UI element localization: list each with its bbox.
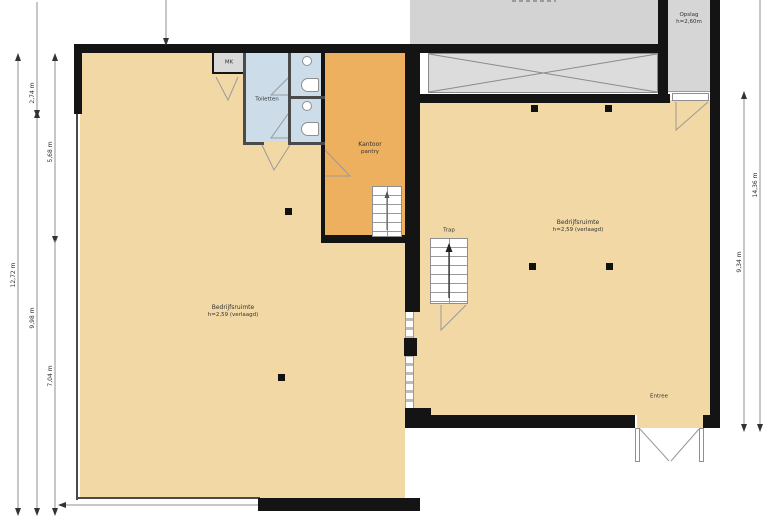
wall-right-room-bottom-left: [418, 415, 635, 428]
dim-right-inner: 9,34 m: [736, 251, 743, 272]
wall-right-room-top: [418, 94, 670, 103]
upper-area-cutoff: [410, 0, 658, 44]
label-right-hall: Bedrijfsruimte h=2,59 (verlaagd): [553, 219, 604, 233]
door-swing-entree-left: [640, 429, 669, 461]
column: [278, 374, 285, 381]
dimension-lines-right: [744, 0, 760, 428]
wall-right-room-bottom-right: [703, 415, 720, 428]
room-name: Bedrijfsruimte: [208, 304, 259, 312]
room-height-note: h=2,59 (verlaagd): [208, 311, 259, 318]
dim-left-inner-bottom: 7,04 m: [47, 365, 54, 386]
sink-icon: [302, 101, 312, 111]
stair-trap: [430, 238, 468, 304]
wall-kantoor-bottom: [321, 235, 420, 243]
column: [605, 105, 612, 112]
stair-pantry: [372, 186, 402, 237]
wall-toiletten-left: [243, 53, 246, 145]
column: [529, 263, 536, 270]
wall-center-vertical: [405, 44, 420, 312]
wall-left-thick: [74, 44, 82, 114]
dim-left-mid-top: 2,74 m: [29, 82, 36, 103]
room-sub-note: pantry: [358, 148, 381, 155]
label-opslag: Opslag h=2,60m: [676, 12, 702, 26]
floor-plan: Bedrijfsruimte h=2,59 (verlaagd) Bedrijf…: [0, 0, 780, 520]
room-height-note: h=2,59 (verlaagd): [553, 226, 604, 233]
label-entree: Entree: [650, 394, 668, 401]
wall-stall-divider-h: [288, 96, 325, 99]
room-name: Kantoor: [358, 141, 381, 149]
stair-centerline: [449, 239, 450, 303]
wall-top: [74, 44, 668, 53]
wall-toiletten-bottom-b: [288, 142, 325, 145]
column: [531, 105, 538, 112]
stair-centerline: [387, 187, 388, 236]
door-leaf-entree-left: [635, 428, 640, 462]
crossed-void-box: [428, 53, 658, 93]
column: [606, 263, 613, 270]
column: [285, 208, 292, 215]
wall-stall-divider-v: [288, 53, 291, 145]
room-height-note: h=2,60m: [676, 19, 702, 26]
toilet-icon: [301, 78, 319, 92]
room-name: Opslag: [676, 12, 702, 19]
label-left-hall: Bedrijfsruimte h=2,59 (verlaagd): [208, 304, 259, 318]
room-name: Bedrijfsruimte: [553, 219, 604, 227]
wall-bottom-thick: [258, 498, 420, 511]
sink-icon: [302, 56, 312, 66]
door-leaf-entree-right: [699, 428, 704, 462]
wall-gray-divider: [658, 0, 668, 95]
door-leaf-opslag: [672, 93, 709, 101]
wall-right-outer: [710, 0, 720, 428]
label-mk: MK: [225, 60, 233, 67]
wall-bottom-thin: [78, 497, 260, 499]
entree-floor-strip: [637, 415, 703, 428]
dim-left-total: 12,72 m: [10, 262, 17, 287]
dim-left-mid-bottom: 9,98 m: [29, 307, 36, 328]
wall-center-pier: [404, 338, 417, 356]
label-trap: Trap: [443, 228, 455, 235]
label-toiletten: Toiletten: [255, 97, 278, 104]
wall-kantoor-left: [321, 53, 325, 243]
wall-toiletten-bottom-a: [243, 142, 264, 145]
wall-left-thin: [76, 114, 78, 500]
dim-right-outer: 14,36 m: [752, 172, 759, 197]
label-kantoor: Kantoor pantry: [358, 141, 381, 155]
dim-left-inner-top: 5,68 m: [47, 141, 54, 162]
wall-center-dashed: [405, 312, 414, 408]
door-swing-entree-right: [671, 429, 699, 461]
toilet-icon: [301, 122, 319, 136]
